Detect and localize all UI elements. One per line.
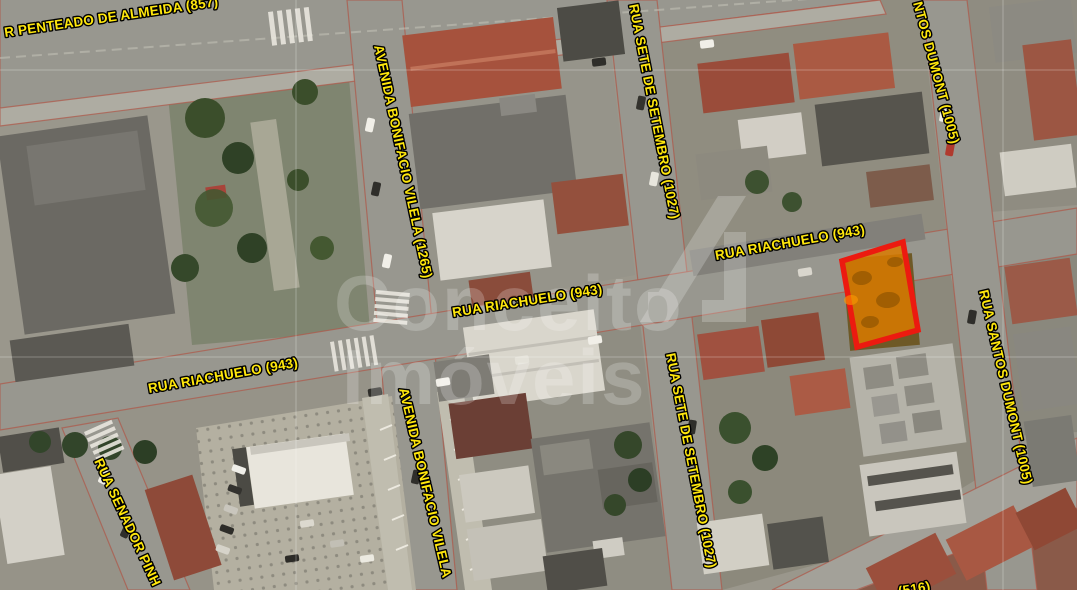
property-highlight xyxy=(842,242,918,347)
map-canvas: Conceito Imóveis R PENTEADO DE ALMEIDA (… xyxy=(0,0,1077,590)
watermark-line2: Imóveis xyxy=(342,333,646,421)
satellite-map[interactable]: Conceito Imóveis R PENTEADO DE ALMEIDA (… xyxy=(0,0,1077,590)
